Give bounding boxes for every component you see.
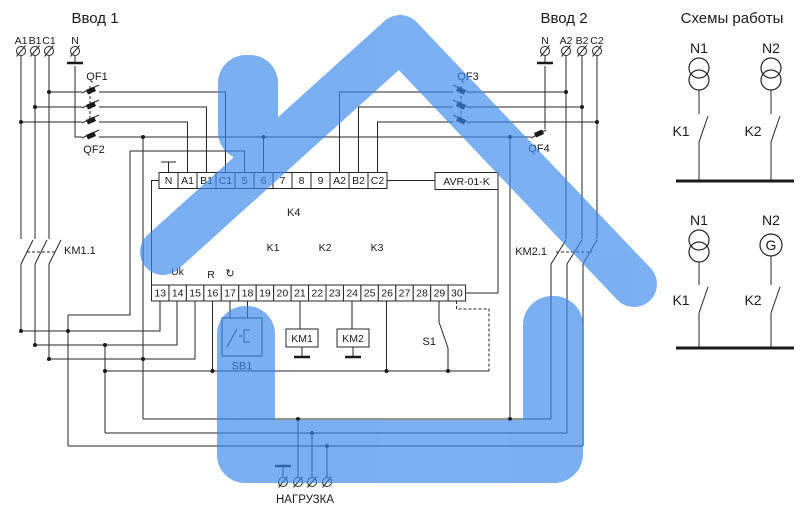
device-bottom-terminal-row: 131415161718192021222324252627282930	[152, 285, 466, 301]
load-label: НАГРУЗКА	[276, 494, 334, 506]
top-terminal-label-N: N	[165, 175, 173, 187]
schemes-title: Схемы работы	[681, 10, 784, 27]
junction-dot	[47, 357, 51, 361]
bottom-terminal-label-19: 19	[259, 288, 271, 300]
bottom-terminal-label-27: 27	[399, 288, 411, 300]
input1-term-a1: A1	[15, 35, 28, 47]
junction-dot	[385, 369, 389, 373]
k1-label: K1	[267, 242, 280, 254]
bottom-terminal-label-13: 13	[154, 288, 166, 300]
km2-coil-label: KM2	[342, 333, 364, 345]
bottom-terminal-label-22: 22	[311, 288, 323, 300]
k3-label: K3	[371, 242, 384, 254]
schematic-page: NA1B1C156789A2B2C2 131415161718192021222…	[0, 0, 800, 517]
input2-term-b2: B2	[576, 35, 589, 47]
junction-dot	[580, 105, 584, 109]
bottom-terminal-label-25: 25	[364, 288, 376, 300]
bottom-terminal-label-24: 24	[346, 288, 358, 300]
house-floor	[217, 420, 583, 483]
transformer-icon	[689, 58, 709, 78]
bottom-terminal-label-14: 14	[172, 288, 184, 300]
bottom-terminal-label-21: 21	[294, 288, 306, 300]
bottom-terminal-label-28: 28	[416, 288, 428, 300]
scheme-bus-bars	[676, 181, 794, 348]
junction-dot	[141, 135, 145, 139]
bottom-terminal-label-23: 23	[329, 288, 341, 300]
transformer-icon	[689, 70, 709, 90]
junction-dot	[33, 343, 37, 347]
scheme1-n1-label: N1	[690, 40, 708, 56]
scheme2-n1-label: N1	[690, 212, 708, 228]
top-terminal-label-A1: A1	[181, 175, 194, 187]
scheme1-k2-label: K2	[744, 123, 761, 139]
input1-title: Ввод 1	[71, 10, 118, 27]
bottom-terminal-label-16: 16	[207, 288, 219, 300]
scheme-symbols	[689, 58, 782, 262]
qf1-label: QF1	[86, 71, 107, 83]
input2-term-c2: C2	[590, 35, 604, 47]
scheme1-n2-label: N2	[762, 40, 780, 56]
bottom-terminal-label-15: 15	[189, 288, 201, 300]
bottom-terminal-label-26: 26	[381, 288, 393, 300]
junction-dot	[47, 90, 51, 94]
top-terminal-label-A2: A2	[333, 175, 346, 187]
r-label: R	[207, 269, 215, 281]
junction-dot	[103, 369, 107, 373]
bottom-terminal-label-17: 17	[224, 288, 236, 300]
input1-term-n: N	[71, 35, 79, 47]
top-terminal-label-9: 9	[318, 175, 324, 187]
top-terminal-label-C2: C2	[371, 175, 385, 187]
junction-dot	[33, 105, 37, 109]
transformer-icon	[689, 242, 709, 262]
k4-label: K4	[287, 207, 300, 219]
bottom-terminal-label-29: 29	[434, 288, 446, 300]
bottom-terminal-label-30: 30	[451, 288, 463, 300]
reset-rotate-icon: ↻	[225, 267, 234, 280]
input2-term-n: N	[541, 35, 549, 47]
scheme2-k1-label: K1	[672, 292, 689, 308]
junction-dot	[19, 329, 23, 333]
junction-dot	[564, 90, 568, 94]
input1-term-b1: B1	[29, 35, 42, 47]
input2-title: Ввод 2	[540, 10, 587, 27]
junction-dot	[141, 357, 145, 361]
generator-letter: G	[766, 237, 777, 253]
qf2-label: QF2	[83, 144, 104, 156]
km21-label: KM2.1	[515, 246, 547, 258]
bottom-terminal-label-20: 20	[277, 288, 289, 300]
input2-term-a2: A2	[560, 35, 573, 47]
scheme2-n2-label: N2	[762, 212, 780, 228]
transformer-icon	[689, 230, 709, 250]
junction-dot	[595, 120, 599, 124]
junction-dot	[446, 369, 450, 373]
input1-term-c1: C1	[42, 35, 56, 47]
avr-wiring-diagram: NA1B1C156789A2B2C2 131415161718192021222…	[0, 0, 800, 517]
scheme2-k2-label: K2	[744, 292, 761, 308]
junction-dot	[211, 369, 215, 373]
km1-coil-label: KM1	[291, 333, 313, 345]
k2-label: K2	[319, 242, 332, 254]
transformer-icon	[761, 58, 781, 78]
top-terminal-label-8: 8	[299, 175, 305, 187]
scheme1-k1-label: K1	[672, 123, 689, 139]
s1-label: S1	[423, 336, 436, 348]
device-model-label: AVR-01-K	[443, 176, 490, 188]
junction-dot	[66, 329, 70, 333]
junction-dot	[19, 120, 23, 124]
top-terminal-label-B2: B2	[352, 175, 365, 187]
transformer-icon	[761, 70, 781, 90]
junction-dot	[103, 343, 107, 347]
bottom-terminal-label-18: 18	[242, 288, 254, 300]
km11-label: KM1.1	[64, 245, 96, 257]
